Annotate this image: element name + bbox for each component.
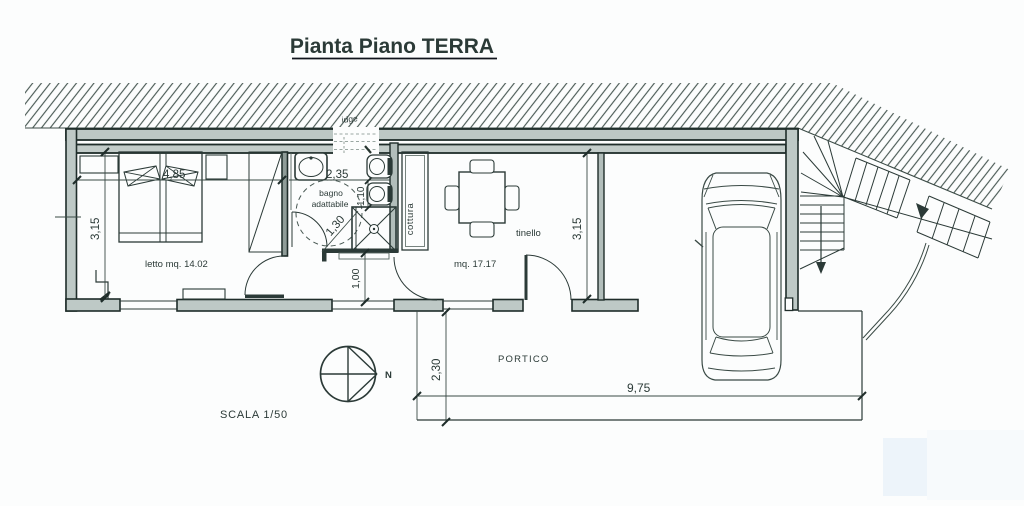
svg-text:PORTICO: PORTICO [498,354,550,365]
svg-text:letto mq. 14.02: letto mq. 14.02 [145,259,208,270]
svg-text:1,10: 1,10 [356,186,367,206]
svg-text:Pianta Piano TERRA: Pianta Piano TERRA [290,35,494,58]
svg-text:SCALA 1/50: SCALA 1/50 [220,409,288,421]
svg-text:N: N [385,370,392,381]
svg-text:tinello: tinello [516,228,541,239]
svg-text:2,35: 2,35 [326,169,348,181]
svg-text:3,15: 3,15 [90,218,102,240]
svg-text:2,30: 2,30 [431,359,443,381]
svg-text:1,30: 1,30 [324,214,348,239]
svg-text:4,85: 4,85 [163,169,185,181]
svg-text:cottura: cottura [405,203,416,236]
svg-text:idge: idge [341,113,358,125]
svg-text:9,75: 9,75 [627,381,651,395]
svg-text:mq. 17.17: mq. 17.17 [454,259,496,270]
svg-text:adattabile: adattabile [312,199,349,209]
svg-text:3,15: 3,15 [572,218,584,240]
svg-text:bagno: bagno [319,188,343,198]
svg-text:1,00: 1,00 [350,268,362,289]
